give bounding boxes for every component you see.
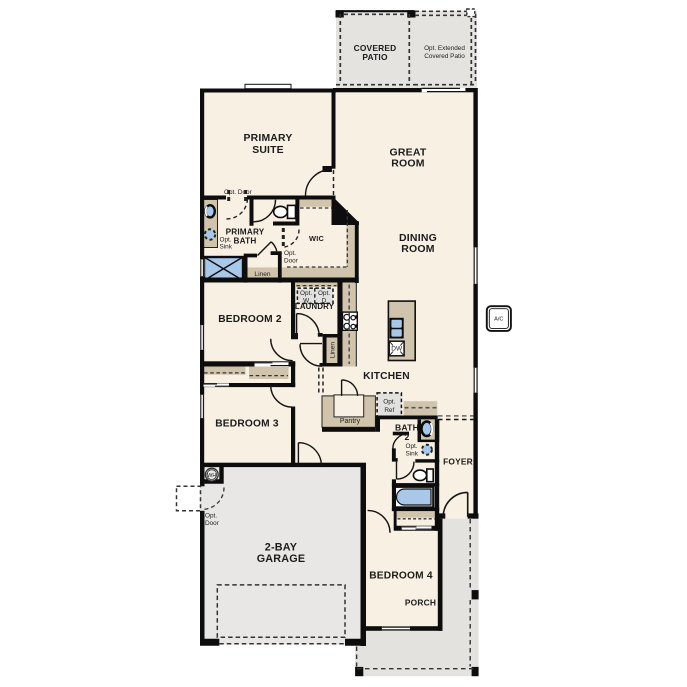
svg-text:Sink: Sink bbox=[406, 450, 419, 457]
svg-text:FOYER: FOYER bbox=[443, 456, 473, 466]
svg-text:PORCH: PORCH bbox=[405, 598, 436, 608]
svg-text:WIC: WIC bbox=[309, 234, 324, 243]
svg-text:WH: WH bbox=[207, 473, 216, 479]
svg-text:A/C: A/C bbox=[494, 317, 503, 323]
svg-text:KITCHEN: KITCHEN bbox=[363, 371, 410, 382]
svg-text:ROOM: ROOM bbox=[401, 243, 435, 255]
svg-text:Sink: Sink bbox=[220, 244, 233, 251]
svg-text:Pantry: Pantry bbox=[340, 418, 361, 425]
svg-text:BATH: BATH bbox=[234, 237, 257, 246]
svg-text:Door: Door bbox=[284, 258, 299, 265]
svg-text:Opt.: Opt. bbox=[318, 290, 330, 297]
svg-text:SUITE: SUITE bbox=[252, 145, 284, 156]
svg-text:Opt.: Opt. bbox=[300, 290, 312, 297]
svg-text:Opt. Door: Opt. Door bbox=[224, 189, 253, 196]
svg-text:Opt.: Opt. bbox=[383, 398, 395, 405]
svg-text:BEDROOM 2: BEDROOM 2 bbox=[218, 314, 282, 325]
svg-text:PRIMARY: PRIMARY bbox=[244, 133, 293, 144]
svg-text:Linen: Linen bbox=[330, 342, 337, 358]
svg-text:2-BAY: 2-BAY bbox=[265, 542, 298, 554]
svg-text:Opt.: Opt. bbox=[406, 443, 418, 450]
svg-text:Linen: Linen bbox=[254, 271, 270, 278]
svg-text:Opt.: Opt. bbox=[284, 250, 296, 257]
svg-text:BEDROOM 3: BEDROOM 3 bbox=[215, 418, 279, 429]
svg-text:BEDROOM 4: BEDROOM 4 bbox=[369, 570, 433, 581]
svg-text:2: 2 bbox=[405, 432, 410, 442]
svg-text:PRIMARY: PRIMARY bbox=[226, 227, 265, 236]
svg-text:DW: DW bbox=[391, 346, 403, 353]
svg-text:GARAGE: GARAGE bbox=[257, 553, 306, 565]
svg-text:ROOM: ROOM bbox=[391, 158, 425, 170]
svg-text:Ref: Ref bbox=[384, 407, 394, 414]
svg-text:Opt.: Opt. bbox=[220, 237, 232, 244]
svg-text:Door: Door bbox=[205, 520, 220, 527]
svg-text:PATIO: PATIO bbox=[362, 52, 388, 62]
svg-text:Opt. Extended: Opt. Extended bbox=[424, 45, 465, 52]
svg-text:LAUNDRY: LAUNDRY bbox=[295, 302, 335, 311]
svg-text:Opt.: Opt. bbox=[205, 513, 217, 520]
svg-text:Covered Patio: Covered Patio bbox=[424, 53, 465, 60]
